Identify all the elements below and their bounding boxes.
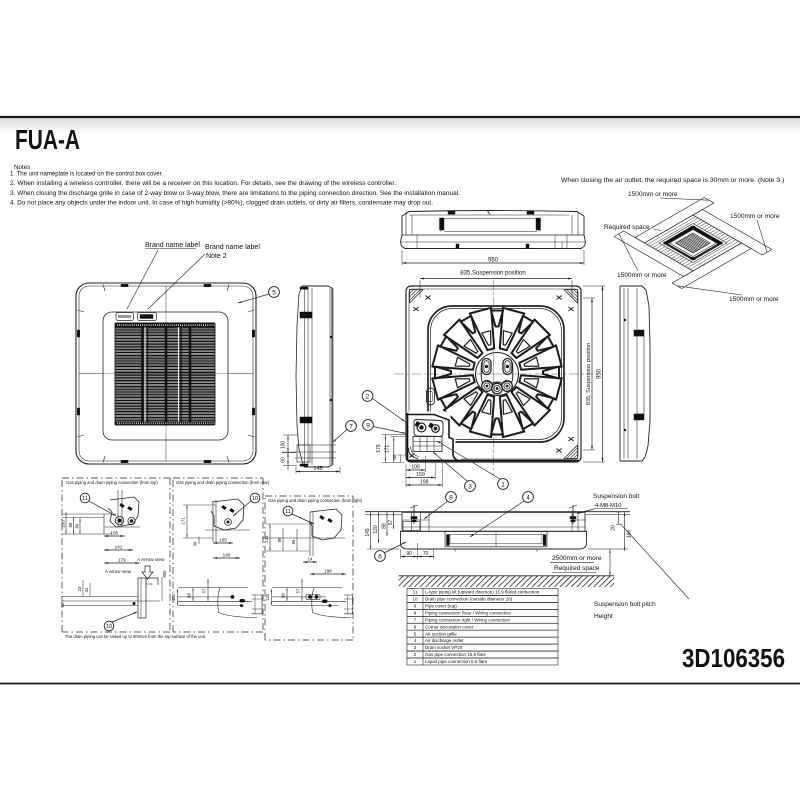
svg-text:38: 38 — [392, 454, 397, 460]
svg-text:11: 11 — [285, 509, 291, 515]
svg-text:9: 9 — [366, 422, 370, 429]
svg-text:4-M8-M10: 4-M8-M10 — [595, 503, 621, 509]
svg-text:10: 10 — [412, 597, 418, 602]
svg-text:198: 198 — [420, 480, 429, 486]
svg-text:3. When closing the discharge: 3. When closing the discharge grille in … — [10, 190, 460, 197]
svg-text:2: 2 — [366, 393, 370, 400]
svg-text:141: 141 — [115, 545, 123, 550]
svg-text:2500mm or more: 2500mm or more — [552, 555, 602, 562]
svg-text:Suspension bolt: Suspension bolt — [593, 493, 639, 500]
svg-text:70: 70 — [423, 551, 429, 557]
svg-text:Required space: Required space — [604, 224, 650, 231]
svg-text:Note 2: Note 2 — [206, 253, 227, 260]
svg-text:800: 800 — [162, 570, 167, 578]
svg-text:A Arrow view: A Arrow view — [137, 557, 165, 563]
svg-text:When closing the air outlet, t: When closing the air outlet, the require… — [561, 177, 784, 184]
svg-text:The drain piping can be raised: The drain piping can be raised up to 600… — [65, 634, 206, 639]
svg-text:8: 8 — [449, 494, 453, 501]
svg-text:179: 179 — [118, 558, 126, 563]
svg-text:88: 88 — [68, 522, 73, 527]
svg-text:Gas pipe connection 15.9 flare: Gas pipe connection 15.9 flare — [425, 652, 487, 657]
svg-text:4. Do not place any objects un: 4. Do not place any objects under the in… — [10, 200, 433, 207]
svg-text:835, Suspension position: 835, Suspension position — [586, 343, 592, 406]
svg-text:20: 20 — [611, 525, 617, 531]
svg-text:88: 88 — [382, 523, 388, 529]
svg-text:7: 7 — [349, 423, 353, 430]
svg-text:L-type piping kit (upward dire: L-type piping kit (upward direction) 15.… — [425, 590, 540, 595]
svg-text:950: 950 — [597, 368, 603, 379]
svg-text:105: 105 — [219, 538, 227, 543]
svg-text:835,Suspension position: 835,Suspension position — [460, 271, 525, 277]
svg-text:Piping connection right / Wi: Piping connection right / Wiring connect… — [425, 617, 511, 622]
svg-text:159: 159 — [416, 472, 425, 478]
svg-text:171: 171 — [384, 445, 390, 454]
svg-text:34: 34 — [84, 587, 89, 592]
svg-text:1500mm or more: 1500mm or more — [628, 191, 678, 198]
svg-text:1500mm or more: 1500mm or more — [617, 272, 667, 279]
svg-text:198: 198 — [324, 569, 332, 574]
svg-text:Air suction grille: Air suction grille — [425, 631, 457, 636]
svg-text:Liquid pipe connection 6.5 fla: Liquid pipe connection 6.5 flare — [425, 659, 488, 664]
svg-text:57: 57 — [296, 588, 301, 593]
svg-text:Brand name label: Brand name label — [205, 244, 260, 251]
svg-text:Suspension bolt pitch: Suspension bolt pitch — [594, 601, 656, 608]
svg-text:1500mm or more: 1500mm or more — [729, 296, 779, 303]
svg-text:60: 60 — [281, 457, 287, 463]
svg-text:14: 14 — [308, 557, 313, 562]
svg-text:1500mm or more: 1500mm or more — [730, 213, 780, 220]
svg-text:5: 5 — [272, 289, 276, 296]
svg-text:140: 140 — [223, 553, 231, 558]
svg-text:10: 10 — [252, 496, 258, 502]
svg-text:Gas piping and drain piping co: Gas piping and drain piping connection (… — [268, 498, 363, 503]
svg-text:Pipe cover (top): Pipe cover (top) — [425, 604, 457, 609]
svg-text:39: 39 — [193, 541, 198, 546]
svg-text:105: 105 — [110, 531, 118, 536]
svg-text:23: 23 — [77, 586, 82, 591]
svg-text:120: 120 — [171, 593, 176, 601]
svg-text:88: 88 — [60, 602, 65, 607]
svg-text:145: 145 — [365, 528, 371, 537]
svg-text:Air discharge outlet: Air discharge outlet — [425, 638, 464, 643]
svg-text:11: 11 — [82, 496, 88, 502]
svg-text:Drain socket VP20: Drain socket VP20 — [425, 645, 463, 650]
svg-text:4: 4 — [526, 494, 530, 501]
svg-text:Drain pipe connection (outside: Drain pipe connection (outside diameter … — [425, 597, 513, 602]
svg-text:57: 57 — [202, 588, 207, 593]
svg-text:105: 105 — [411, 465, 420, 471]
svg-text:145: 145 — [313, 466, 322, 472]
svg-text:Corner decoration cover: Corner decoration cover — [425, 624, 474, 629]
svg-text:90: 90 — [406, 551, 412, 557]
svg-text:3D106356: 3D106356 — [682, 643, 785, 673]
svg-text:Brand name label: Brand name label — [145, 242, 200, 249]
svg-text:1: 1 — [501, 481, 505, 488]
svg-text:11: 11 — [413, 590, 418, 595]
svg-text:141: 141 — [264, 535, 269, 543]
svg-text:10: 10 — [106, 624, 112, 630]
svg-text:Gas piping and drain piping co: Gas piping and drain piping connection (… — [66, 480, 158, 485]
svg-text:A arrow view: A arrow view — [105, 569, 132, 574]
svg-text:108: 108 — [61, 520, 66, 528]
svg-text:Gas piping and drain piping co: Gas piping and drain piping connection (… — [176, 480, 270, 485]
svg-text:171: 171 — [181, 517, 186, 525]
svg-text:57: 57 — [388, 520, 394, 526]
svg-text:3: 3 — [468, 483, 472, 490]
svg-text:2. When installing a wireless: 2. When installing a wireless controller… — [10, 180, 396, 187]
svg-text:88: 88 — [281, 593, 286, 598]
svg-text:89: 89 — [277, 537, 282, 542]
svg-text:Height: Height — [594, 613, 613, 620]
svg-text:88: 88 — [187, 593, 192, 598]
svg-text:100: 100 — [281, 441, 287, 450]
svg-text:178: 178 — [376, 444, 382, 453]
svg-text:86: 86 — [75, 523, 80, 528]
svg-text:120: 120 — [265, 593, 270, 601]
svg-text:Piping connection Rear / Wir: Piping connection Rear / Wiring connecti… — [425, 610, 512, 615]
svg-text:86: 86 — [291, 539, 296, 544]
svg-text:120: 120 — [373, 525, 379, 534]
svg-text:1. The unit nameplate is locat: 1. The unit nameplate is located on the … — [10, 171, 163, 178]
svg-text:FUA-A: FUA-A — [15, 124, 80, 155]
svg-text:Required space: Required space — [554, 565, 600, 572]
svg-text:6: 6 — [378, 553, 382, 560]
svg-text:950: 950 — [488, 258, 499, 264]
